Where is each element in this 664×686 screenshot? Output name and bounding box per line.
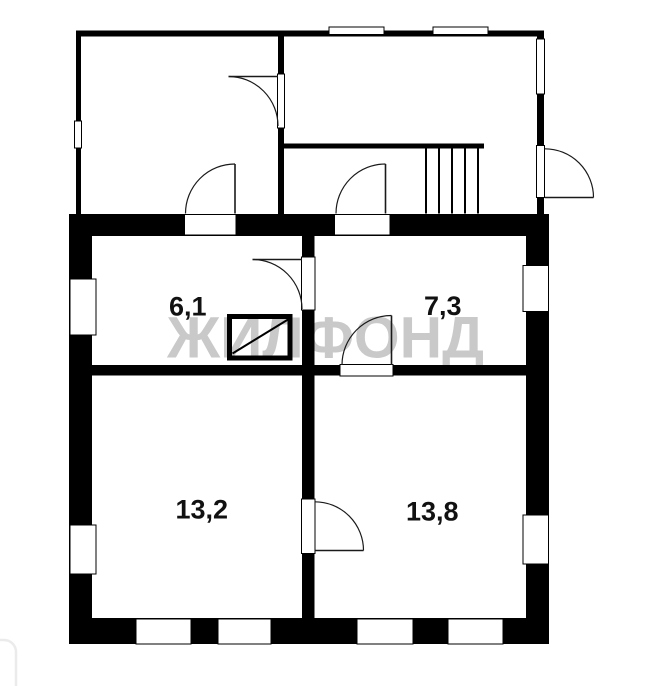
svg-text:6,1: 6,1	[169, 292, 207, 322]
svg-text:13,2: 13,2	[176, 495, 229, 525]
svg-text:13,8: 13,8	[406, 497, 459, 527]
svg-text:7,3: 7,3	[424, 291, 462, 321]
